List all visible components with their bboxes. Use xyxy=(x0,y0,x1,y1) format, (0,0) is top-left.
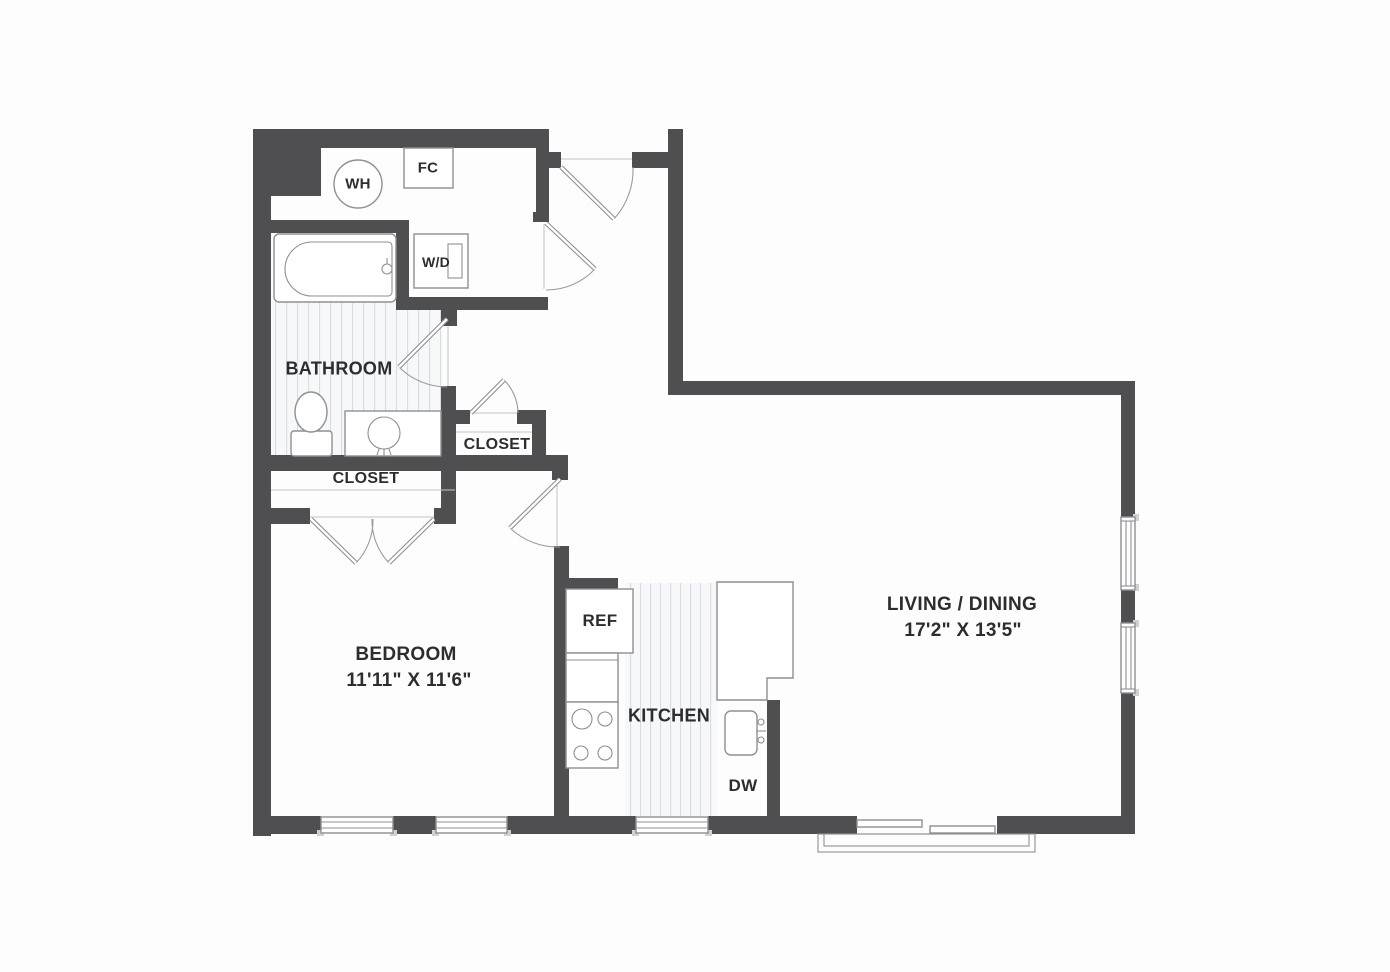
kitchen-peninsula-counter xyxy=(717,582,793,700)
floor-plan-drawing xyxy=(0,0,1390,972)
kitchen-sink xyxy=(725,711,766,755)
bedroom-window-2 xyxy=(432,817,511,836)
sliding-glass-door xyxy=(857,820,995,833)
stove xyxy=(566,702,618,768)
bedroom-window-1 xyxy=(317,817,397,836)
bedroom-dimensions: 11'11" X 11'6" xyxy=(346,670,471,692)
hall-closet-label: CLOSET xyxy=(464,436,531,454)
washer-dryer-label: W/D xyxy=(422,254,450,270)
bedroom-closet-doors xyxy=(311,519,434,563)
bedroom-closet-label: CLOSET xyxy=(333,470,400,488)
floor-plan: WH FC W/D BATHROOM CLOSET CLOSET BEDROOM… xyxy=(0,0,1390,972)
kitchen-floor xyxy=(625,583,717,816)
living-window-2 xyxy=(1121,620,1139,696)
entry-door xyxy=(561,167,633,219)
living-window-1 xyxy=(1121,514,1139,591)
laundry-door xyxy=(546,223,595,290)
fan-coil-label: FC xyxy=(418,160,439,177)
bedroom-label: BEDROOM xyxy=(355,644,456,666)
kitchen-window xyxy=(632,817,712,836)
living-dining-dimensions: 17'2" X 13'5" xyxy=(904,620,1022,642)
living-dining-label: LIVING / DINING xyxy=(887,594,1037,616)
hall-closet-door xyxy=(471,380,518,413)
kitchen-counter-left xyxy=(566,653,618,702)
kitchen-label: KITCHEN xyxy=(628,706,710,727)
refrigerator-label: REF xyxy=(583,611,618,631)
bathroom-vanity xyxy=(345,411,441,457)
bathtub xyxy=(274,234,396,302)
balcony-outline xyxy=(818,834,1035,852)
dishwasher-label: DW xyxy=(729,776,758,796)
bedroom-door xyxy=(510,479,560,547)
bathroom-label: BATHROOM xyxy=(285,359,392,380)
water-heater-label: WH xyxy=(345,176,371,193)
